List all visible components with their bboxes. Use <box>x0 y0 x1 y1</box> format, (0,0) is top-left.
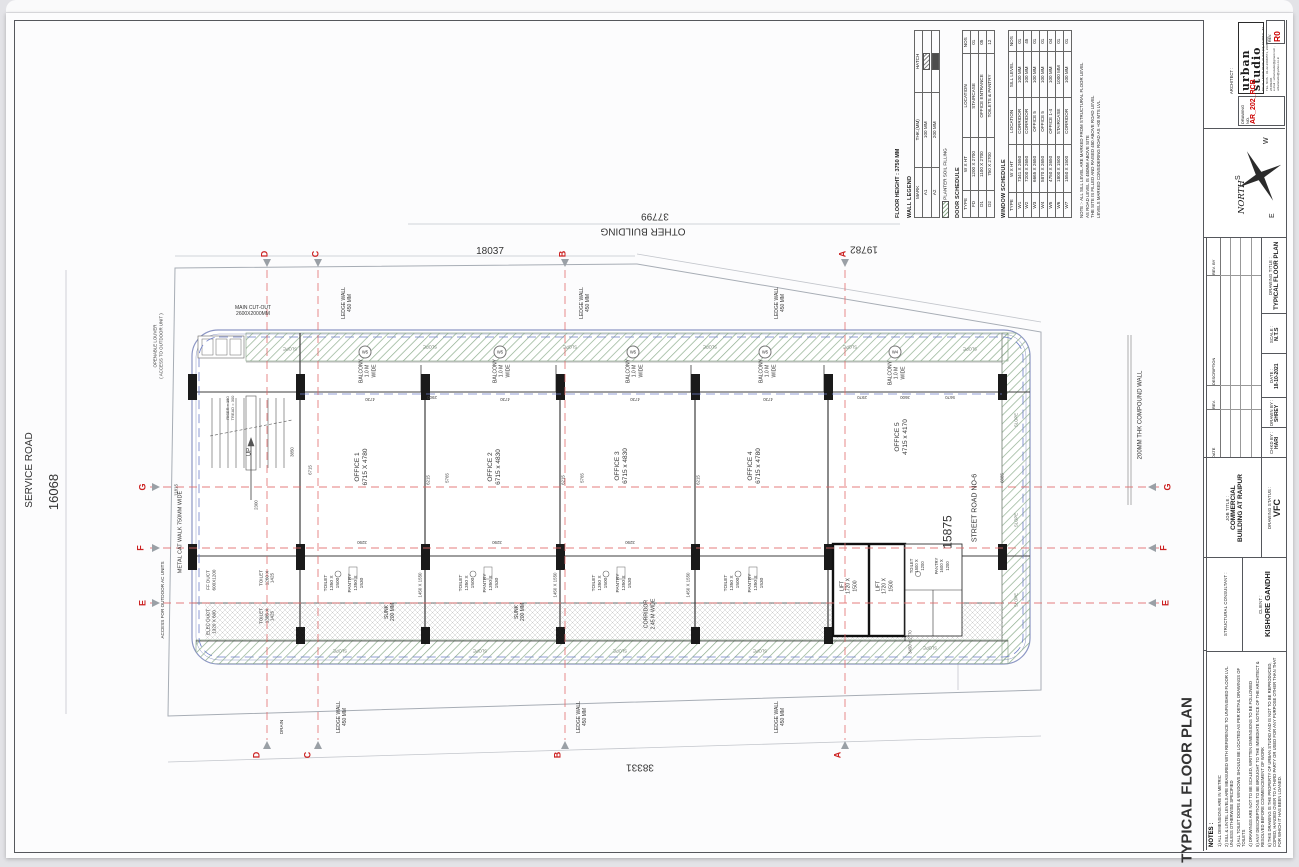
architect-label: ARCHITECT : <box>1229 22 1234 94</box>
table-cell: 01 <box>1016 31 1024 52</box>
table-cell: 5870 X 2650 <box>1040 145 1048 193</box>
lift-label: LIFT 1720 X 1500 <box>876 578 895 594</box>
table-cell: 1000 MM <box>1056 52 1064 98</box>
table-cell: D2 <box>986 190 994 217</box>
grid-letter: B <box>552 752 563 759</box>
grid-letter: A <box>832 752 843 759</box>
pantry-label: PANTRY 1350 X 1530 <box>616 573 634 592</box>
table-row: D11100 X 2700OFFICE ENTRANCE05 <box>978 31 986 218</box>
list-item: 2) SILL & LINTEL LEVELS ARE MEASURED WIT… <box>1224 655 1235 847</box>
table-cell: A2 <box>931 167 940 217</box>
rev-value: R0 <box>1272 22 1282 42</box>
list-item: LEVELS MARKED CONSIDERING ROAD AS +00 MT… <box>1096 22 1102 218</box>
balcony-label: BALCONY 1.0 M WIDE <box>359 359 378 383</box>
window-tag: W5 <box>627 346 640 359</box>
table-cell: D1 <box>978 190 986 217</box>
slope-label: SLOPE <box>423 344 437 349</box>
pantry-label: PANTRY 1600 X 1200 <box>934 558 950 575</box>
toilet-label: TOILET 1350 X 1500 <box>724 575 742 592</box>
plan-title: TYPICAL FLOOR PLAN <box>1179 697 1198 863</box>
table-cell <box>931 31 940 93</box>
ledge-wall-label: LEDGE WALL 450 MM <box>336 701 349 733</box>
slope-label: SLOPE <box>473 648 487 653</box>
dim-label: 4730 <box>365 396 375 402</box>
table-row: W71550 X 1500CORRIDOR100 MM01 <box>1063 31 1071 218</box>
slope-label: SLOPE <box>283 346 297 351</box>
table-header: W X HT <box>1008 145 1016 193</box>
job-title-cell: JOB TITLE :COMMERCIALBUILDING AT RAIPUR <box>1206 457 1263 559</box>
table-row: D2750 X 2700TOILETS & PANTRY12 <box>986 31 994 218</box>
sill-level-note: NOTE :- ALL SILL LEVEL ARE MARKED FROM S… <box>1079 22 1102 218</box>
grid-letter: E <box>137 600 148 606</box>
notes-block: NOTES : 1) ALL DIMENSIONS ARE IN METRIC2… <box>1206 652 1284 850</box>
table-cell: 01 <box>1063 31 1071 52</box>
table-cell: OFFICE 5 <box>1040 98 1048 145</box>
toilet-label: TOILET 1350 X 1500 <box>324 575 342 592</box>
list-item: 5) ANY DESCREPTIONS TO BE BROUGHT TO THE… <box>1255 655 1266 847</box>
grid-letter: E <box>1160 600 1171 606</box>
window-schedule-title: WINDOW SCHEDULE <box>1001 22 1007 218</box>
table-cell: W1 <box>1016 193 1024 218</box>
hatch-swatch <box>923 53 930 70</box>
drawing-no-cell: DRAWING NO. AR_202_RCB <box>1238 96 1285 126</box>
dim-label: 4730 <box>630 396 640 402</box>
revision-table: REV. BY DESCRIPTION REV. DATE <box>1206 237 1263 459</box>
table-header: MARK <box>915 167 923 217</box>
toilet-label: TOILET 1350 X 1500 <box>459 575 477 592</box>
window-tag: W4 <box>889 346 902 359</box>
list-item: 6) THIS DRAWING IS THE PROPERTY OF URBAN… <box>1267 655 1283 847</box>
hatch-swatch <box>932 53 939 70</box>
ledge-wall-label: LEDGE WALL 450 MM <box>774 701 787 733</box>
table-cell: W7 <box>1063 193 1071 218</box>
slope-label: SLOPE <box>703 344 717 349</box>
toilet-label: TOILET 1260 X 1425 <box>258 570 275 586</box>
table-header: THK.(MM) <box>915 92 923 167</box>
list-item: 4) DRAWINGS ARE NOT TO BE SCALED, WRITTE… <box>1248 655 1253 847</box>
table-header: HATCH <box>915 31 923 93</box>
north-compass: W S E NORTH <box>1232 130 1288 234</box>
client-label: CLIENT : <box>1258 558 1263 651</box>
rev-col-header: REV. BY <box>1211 238 1216 275</box>
table-cell: 100 MM <box>922 92 931 167</box>
table-header: NOS <box>1008 31 1016 52</box>
table-cell: OFFICE ENTRANCE <box>978 54 986 138</box>
other-building-label: OTHER BUILDING <box>600 224 685 237</box>
table-cell: 100 MM <box>1063 52 1071 98</box>
dim-label: 2300 <box>253 500 259 510</box>
rev-col-header: DATE <box>1211 409 1216 458</box>
dim-label: 5670 <box>945 394 955 400</box>
elec-duct-label: ELEC DUCT 1320 X 600 <box>205 609 216 635</box>
drawn-by-cell: DRAWN BY :SHREY <box>1261 397 1287 429</box>
dim-label: 11815 <box>173 484 179 496</box>
ff-duct-label: FF DUCT 600X1200 <box>205 570 216 591</box>
dim-label: 1450 X 1550 <box>417 573 423 598</box>
table-row: W36665 X 2650OFFICE 5100 MM01 <box>1032 31 1040 218</box>
dim-37799: 37799 <box>641 209 669 222</box>
dim-15875: 15875 <box>941 515 956 548</box>
drawing-title: TYPICAL FLOOR PLAN <box>1273 238 1280 314</box>
table-cell: W6 <box>1056 193 1064 218</box>
client-cell: CLIENT :KISHORE GANDHI <box>1242 557 1287 652</box>
scale-label: SCALE : <box>1269 314 1274 354</box>
drawn-by-label: DRAWN BY : <box>1269 398 1274 428</box>
table-row: W45870 X 2650OFFICE 5100 MM01 <box>1040 31 1048 218</box>
window-tag: W5 <box>759 346 772 359</box>
table-header: LOCATION <box>1008 98 1016 145</box>
dim-18037: 18037 <box>476 246 504 259</box>
drawing-title-cell: DRAWING TITLE :TYPICAL FLOOR PLAN <box>1261 237 1287 315</box>
date-value: 18-10-2021 <box>1274 354 1280 398</box>
table-cell: 6665 X 2650 <box>1032 145 1040 193</box>
table-cell: STAIRCASE <box>1056 98 1064 145</box>
table-cell: 7341 X 2650 <box>1016 145 1024 193</box>
table-cell: 1800 X 1500 <box>1056 145 1064 193</box>
wall-legend-title: WALL LEGEND <box>907 22 913 218</box>
ledge-wall-label: LEDGE WALL 450 MM <box>579 287 592 319</box>
table-cell: W4 <box>1040 193 1048 218</box>
table-cell: CORRIDOR <box>1024 98 1032 145</box>
window-schedule-table: TYPEW X HTLOCATIONSILL LEVELNOSW17341 X … <box>1008 30 1072 218</box>
planter-legend: PLANTER SOIL FILLING <box>942 22 949 218</box>
dim-label: 6215 <box>560 475 566 485</box>
dim-label: 1450 X 1550 <box>552 573 558 598</box>
street-road-label: STREET ROAD NO-6 <box>972 474 981 542</box>
pantry-label: PANTRY 1350 X 1530 <box>748 573 766 592</box>
table-cell: 12 <box>986 31 994 54</box>
table-cell <box>922 31 931 93</box>
table-header: TYPE <box>1008 193 1016 218</box>
dim-label: 3290 <box>492 539 502 545</box>
table-cell: 05 <box>978 31 986 54</box>
table-cell: 100 MM <box>1032 52 1040 98</box>
lift-label: LIFT 1720 X 1500 <box>840 578 859 594</box>
ledge-wall-label: LEDGE WALL 450 MM <box>774 287 787 319</box>
dim-label: 4730 <box>763 396 773 402</box>
rev-cell: REV. R0 <box>1266 20 1285 44</box>
table-cell: OFFICE 1-4 <box>1048 98 1056 145</box>
chkd-by-cell: CHKD BY :HARI <box>1261 427 1287 459</box>
door-schedule-table: TYPEW X HTLOCATIONNOSFD1200 X 2700STAIRC… <box>962 30 995 218</box>
slope-label: SLOPE <box>923 645 937 650</box>
table-cell: W5 <box>1048 193 1056 218</box>
slope-label: SLOPE <box>563 344 577 349</box>
chkd-by-label: CHKD BY : <box>1269 428 1274 458</box>
table-cell: 750 X 2700 <box>986 138 994 191</box>
office-5-label: OFFICE 5 4715 x 4170 <box>894 419 910 455</box>
toilet-label: TOILET 1385 X 1425 <box>258 608 275 624</box>
stair-note: RISER = 150 TREAD = 300 <box>225 396 235 421</box>
grid-letter: D <box>251 752 262 759</box>
dim-label: 3850 <box>289 447 295 457</box>
dim-label: 5765 <box>444 473 450 483</box>
table-header: SILL LEVEL <box>1008 52 1016 98</box>
dim-label: 5765 <box>579 473 585 483</box>
slope-label: SLOPE <box>1013 513 1018 527</box>
table-header: LOCATION <box>963 54 971 138</box>
dim-label: 2900 <box>427 394 437 400</box>
table-cell: FD <box>971 190 979 217</box>
pantry-label: PANTRY 1350 X 1530 <box>483 573 501 592</box>
rev-col-header: REV. <box>1211 385 1216 409</box>
louver-label: OPENABLE LOUVER ( ACCESS TO OUTDOOR UNIT… <box>153 313 164 378</box>
dim-label: 1450 X 1550 <box>685 573 691 598</box>
balcony-label: BALCONY 1.0 M WIDE <box>888 361 907 385</box>
pantry-label: PANTRY 1350 X 1530 <box>348 573 366 592</box>
floor-height-note: FLOOR HEIGHT : 3750 MM <box>895 22 901 218</box>
table-cell: W3 <box>1032 193 1040 218</box>
table-cell: 100 MM <box>1016 52 1024 98</box>
list-item: 3) ALL TOILET DOORS & WINDOWS SHOULD BE … <box>1236 655 1247 847</box>
slope-label: SLOPE <box>1013 413 1018 427</box>
dim-label: 6885 <box>999 473 1005 483</box>
sunk-label: SUNK 200 MM <box>384 603 397 621</box>
dim-label: 3450 + 2770 <box>907 630 912 653</box>
catwalk-label: METAL CAT WALK 750MM WIDE <box>178 491 185 573</box>
balcony-label: BALCONY 1.0 M WIDE <box>493 359 512 383</box>
toilet-label: TOILET 1350 X 1500 <box>592 575 610 592</box>
table-cell: OFFICE 5 <box>1032 98 1040 145</box>
rev-col-header: DESCRIPTION <box>1211 275 1216 385</box>
job-title-line2: BUILDING AT RAIPUR <box>1237 458 1244 558</box>
dim-38331: 38331 <box>626 760 654 773</box>
grid-letter: G <box>1162 483 1173 490</box>
drawn-by-value: SHREY <box>1274 398 1280 428</box>
grid-letter: D <box>259 251 270 258</box>
table-cell: CORRIDOR <box>1016 98 1024 145</box>
table-header: TYPE <box>963 190 971 217</box>
grid-letter: A <box>837 251 848 258</box>
drain-label: DRAIN <box>279 720 285 734</box>
table-cell: CORRIDOR <box>1063 98 1071 145</box>
table-row: A2200 MM <box>931 31 940 218</box>
grid-letter: C <box>310 251 321 258</box>
toilet-label: TOILET 1500 X 1200 <box>909 559 925 574</box>
structural-consultant-cell: STRUCTURAL CONSULTANT : <box>1206 557 1244 652</box>
window-tag: W5 <box>359 346 372 359</box>
table-cell: A1 <box>922 167 931 217</box>
dim-label: 4730 <box>500 396 510 402</box>
dim-label: 6215 <box>695 475 701 485</box>
slope-label: SLOPE <box>843 344 857 349</box>
grid-letter: F <box>1158 545 1169 551</box>
date-label: DATE : <box>1269 354 1274 398</box>
table-cell: 01 <box>971 31 979 54</box>
table-cell: 01 <box>1040 31 1048 52</box>
ledge-wall-label: LEDGE WALL 450 MM <box>341 287 354 319</box>
ledge-wall-label: LEDGE WALL 450 MM <box>576 701 589 733</box>
dim-label: 6215 <box>425 475 431 485</box>
drawing-no: AR_202_RCB <box>1250 98 1257 124</box>
table-cell: 4750 X 2650 <box>1048 145 1056 193</box>
notes-heading: NOTES : <box>1209 655 1215 847</box>
balcony-label: BALCONY 1.0 M WIDE <box>626 359 645 383</box>
scale-value: N.T.S <box>1274 314 1280 354</box>
dim-label: 3290 <box>357 539 367 545</box>
slope-label: SLOPE <box>333 648 347 653</box>
table-header: NOS <box>963 31 971 54</box>
grid-letter: F <box>135 545 146 551</box>
slope-label: SLOPE <box>613 648 627 653</box>
grid-letter: C <box>302 752 313 759</box>
compass-letter-w: W <box>1263 137 1270 144</box>
compass-letter-s: S <box>1235 175 1242 180</box>
table-cell: STAIRCASE <box>971 54 979 138</box>
table-cell: W2 <box>1024 193 1032 218</box>
date-cell: DATE :18-10-2021 <box>1261 353 1287 399</box>
table-cell: TOILETS & PANTRY <box>986 54 994 138</box>
wall-legend-table: MARKTHK.(MM)HATCHA1100 MMA2200 MM <box>914 30 940 218</box>
architect-label-cell: ARCHITECT : <box>1226 22 1236 94</box>
slope-label: SLOPE <box>1013 593 1018 607</box>
table-cell: 100 MM <box>1040 52 1048 98</box>
service-road-label: SERVICE ROAD <box>24 432 37 507</box>
structural-consultant-label: STRUCTURAL CONSULTANT : <box>1223 558 1228 651</box>
table-cell: 45 <box>1024 31 1032 52</box>
table-row: A1100 MM <box>922 31 931 218</box>
office-4-label: OFFICE 4 6715 x 4780 <box>747 448 763 484</box>
dim-label: 3290 <box>625 539 635 545</box>
table-cell: 100 MM <box>1024 52 1032 98</box>
office-2-label: OFFICE 2 6715 x 4830 <box>487 449 503 485</box>
table-row: W17341 X 2650CORRIDOR100 MM01 <box>1016 31 1024 218</box>
slope-label: SLOPE <box>753 648 767 653</box>
table-cell: 1100 X 2700 <box>978 138 986 191</box>
dim-label: 2970 <box>857 394 867 400</box>
table-cell: 7200 X 2650 <box>1024 145 1032 193</box>
list-item: 1) ALL DIMENSIONS ARE IN METRIC <box>1217 655 1222 847</box>
table-cell: 04 <box>1048 31 1056 52</box>
strip-divider <box>1203 128 1285 129</box>
slope-label: SLOPE <box>963 346 977 351</box>
grid-letter: G <box>137 483 148 490</box>
notes-list: 1) ALL DIMENSIONS ARE IN METRIC2) SILL &… <box>1217 655 1282 847</box>
drawing-no-label: DRAWING NO. <box>1240 98 1250 124</box>
drawing-status-label: DRAWING STATUS : <box>1267 458 1272 558</box>
table-row: W54750 X 2650OFFICE 1-4100 MM04 <box>1048 31 1056 218</box>
dim-label: 3600 <box>900 394 910 400</box>
table-row: W61800 X 1500STAIRCASE1000 MM01 <box>1056 31 1064 218</box>
dim-label: 6715 <box>307 465 313 475</box>
planter-label: PLANTER SOIL FILLING <box>943 148 948 199</box>
drawing-viewer: ARCHITECT : urban studio NO.31, UNION PA… <box>0 0 1299 867</box>
dim-19782: 19782 <box>850 242 878 255</box>
table-cell: 100 MM <box>1048 52 1056 98</box>
access-label: ACCESS FOR OUTDOOR AC UNITS <box>160 561 166 638</box>
compound-wall-label: 200MM THK COMPOUND WALL <box>1137 371 1145 460</box>
table-cell: 01 <box>1056 31 1064 52</box>
balcony-label: BALCONY 1.0 M WIDE <box>759 359 778 383</box>
corridor-label: CORRIDOR 2.45 M WIDE <box>644 599 657 630</box>
client-name: KISHORE GANDHI <box>1263 558 1272 651</box>
table-cell: 01 <box>1032 31 1040 52</box>
door-schedule-title: DOOR SCHEDULE <box>955 22 961 218</box>
drawing-status-value: VFC <box>1272 458 1282 558</box>
sunk-label: SUNK 200 MM <box>514 603 527 621</box>
table-row: FD1200 X 2700STAIRCASE01 <box>971 31 979 218</box>
scale-cell: SCALE :N.T.S <box>1261 313 1287 355</box>
job-title-line1: COMMERCIAL <box>1230 458 1237 558</box>
window-tag: W5 <box>494 346 507 359</box>
stair-up-label: UP <box>246 448 254 456</box>
schedules-block: FLOOR HEIGHT : 3750 MM WALL LEGEND MARKT… <box>895 22 1140 218</box>
north-label: NORTH <box>1237 180 1247 215</box>
table-cell: 1200 X 2700 <box>971 138 979 191</box>
chkd-by-value: HARI <box>1274 428 1280 458</box>
office-3-label: OFFICE 3 6715 x 4830 <box>614 448 630 484</box>
table-cell: 200 MM <box>931 92 940 167</box>
table-row: W27200 X 2650CORRIDOR100 MM45 <box>1024 31 1032 218</box>
office-1-label: OFFICE 1 6715 X 4780 <box>354 449 370 486</box>
drawing-status-cell: DRAWING STATUS :VFC <box>1261 457 1287 559</box>
planter-hatch-swatch <box>942 201 949 218</box>
grid-letter: B <box>557 251 568 258</box>
dim-16068: 16068 <box>46 474 62 510</box>
compass-letter-e: E <box>1269 213 1276 218</box>
table-header: W X HT <box>963 138 971 191</box>
table-cell: 1550 X 1500 <box>1063 145 1071 193</box>
cutout-label: MAIN CUT-OUT 2600X2000MM <box>235 305 271 318</box>
